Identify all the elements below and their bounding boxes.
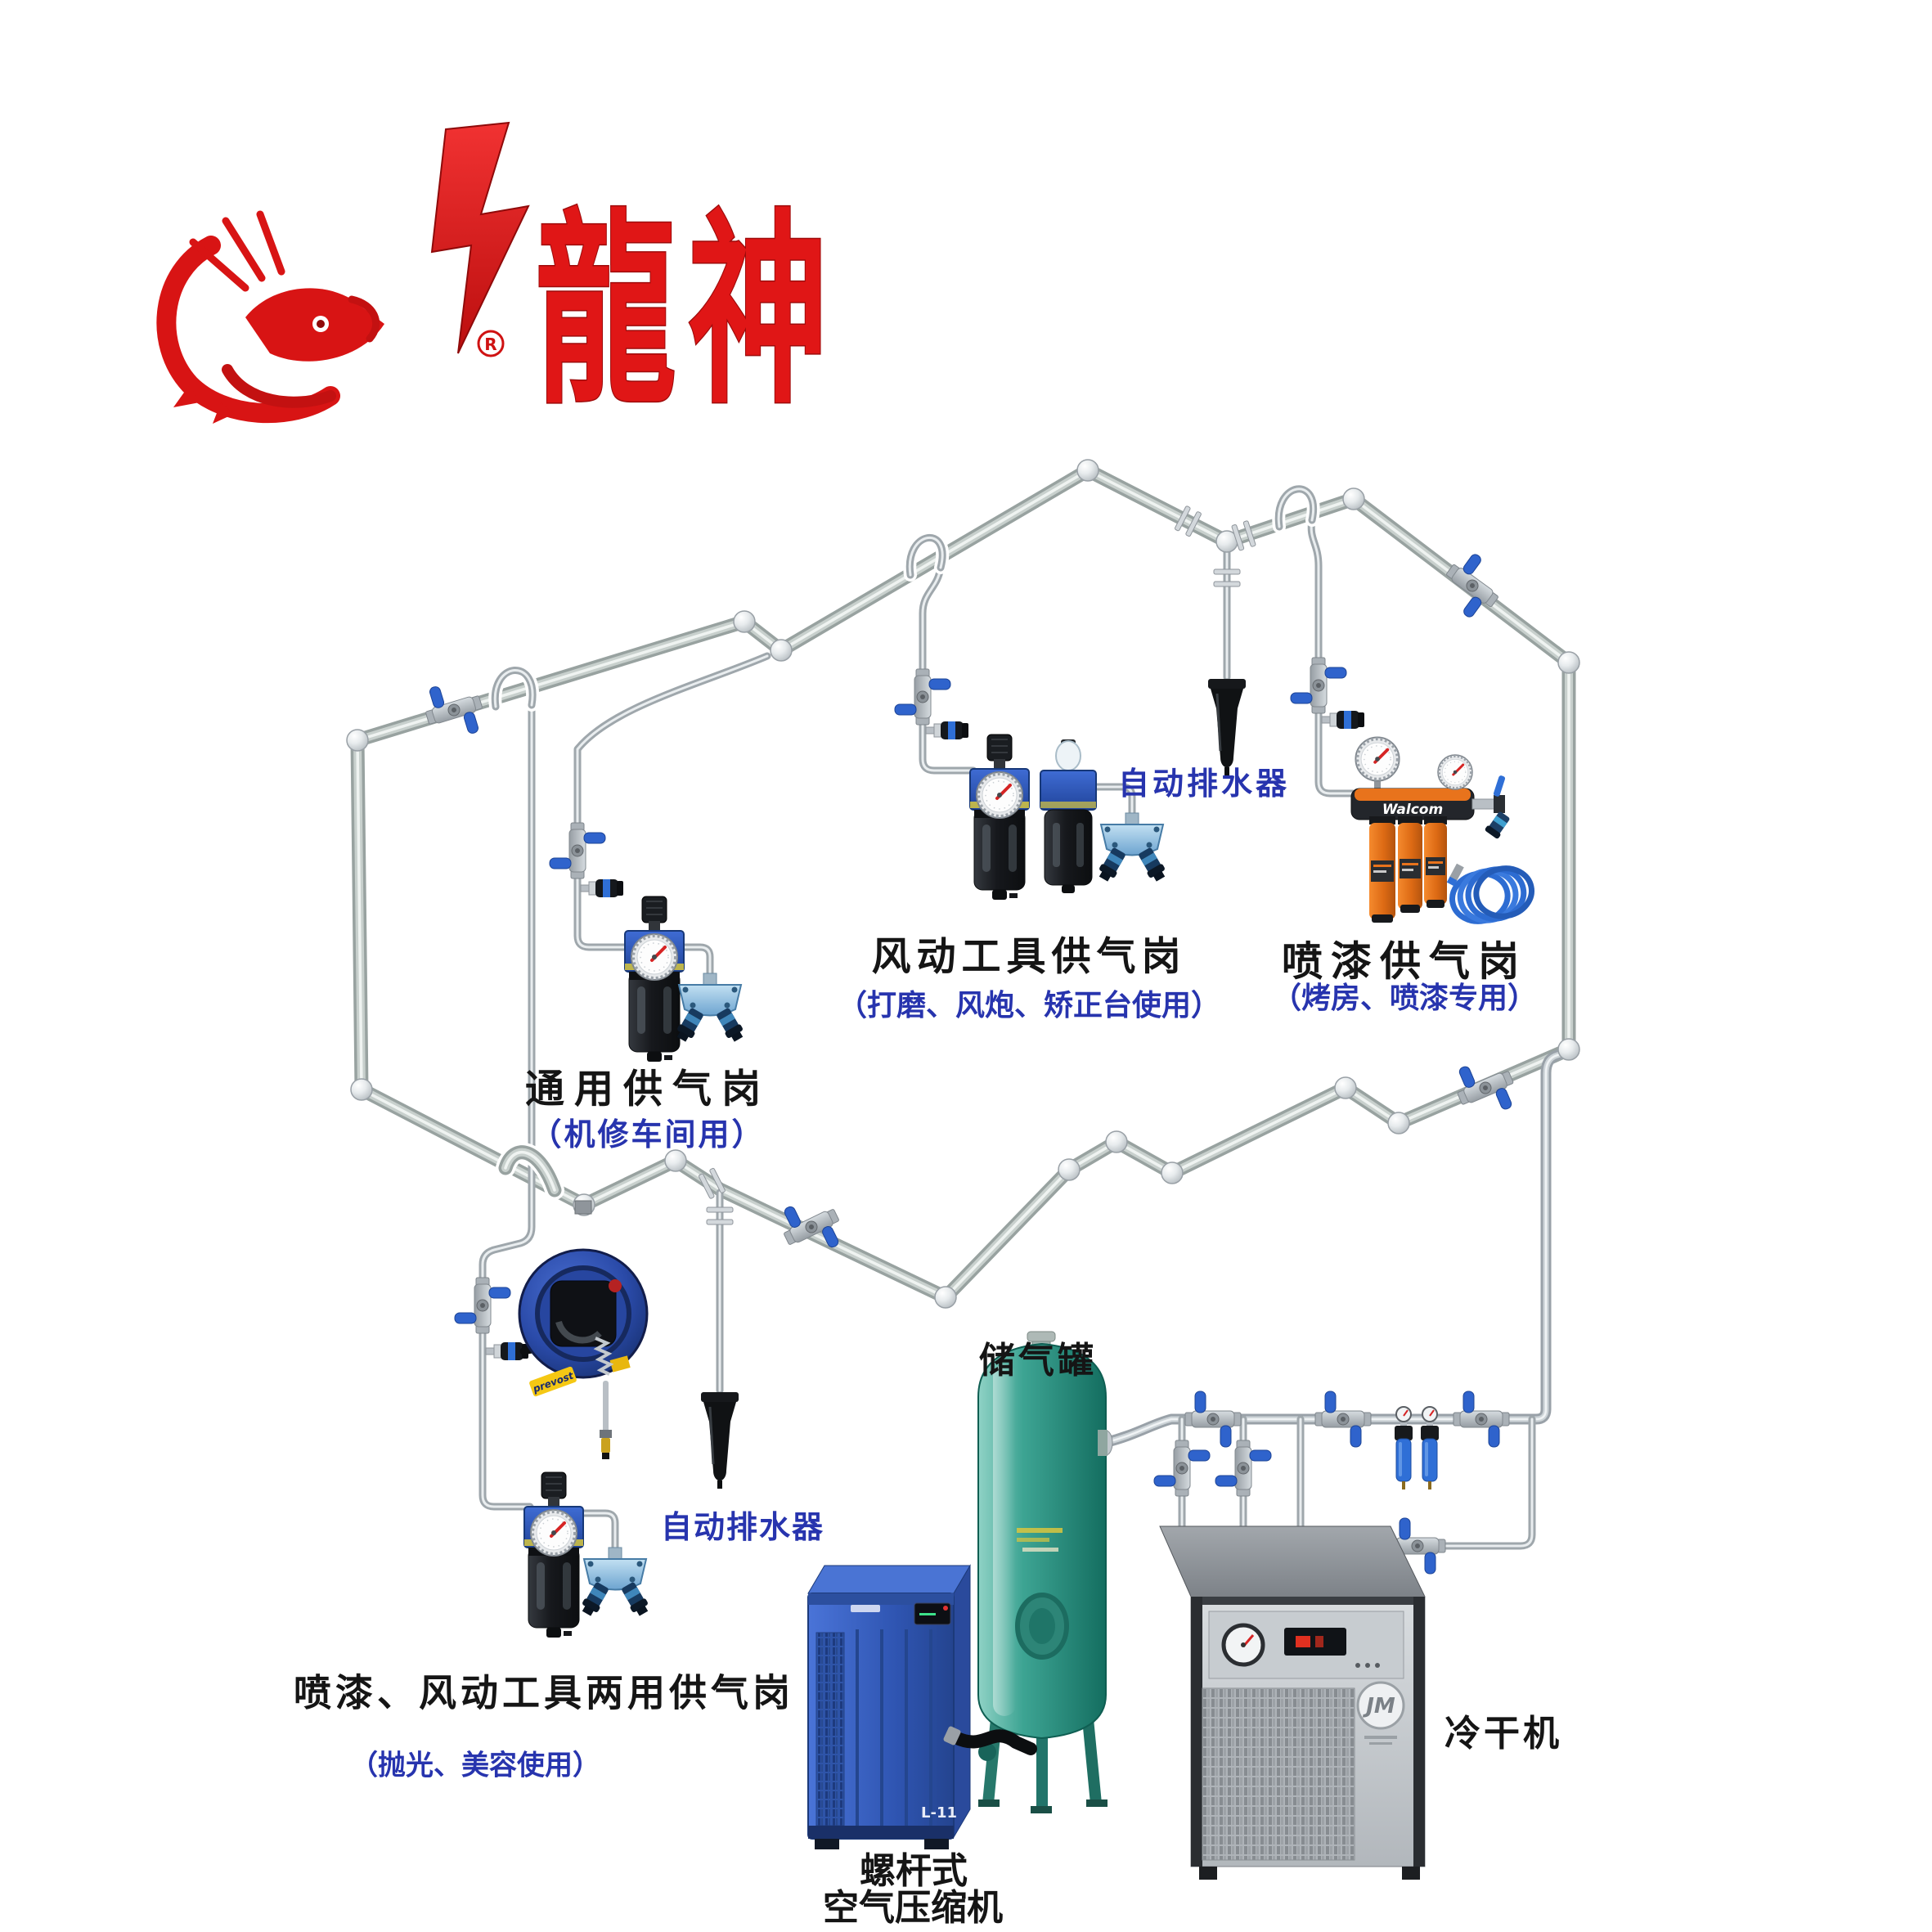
gauge-spray-left xyxy=(1355,737,1399,780)
valve-header-1 xyxy=(1315,1391,1371,1447)
label-station-general-subtitle: （机修车间用） xyxy=(530,1118,765,1152)
valve-dryer-in xyxy=(1154,1440,1210,1496)
label-station-dual-subtitle: （抛光、美容使用） xyxy=(350,1750,600,1781)
ball-valves xyxy=(420,547,1522,1574)
label-station-spray-subtitle: （烤房、喷漆专用） xyxy=(1272,982,1537,1015)
dryer-logo-text: JM xyxy=(1362,1694,1395,1719)
label-compressor-line1: 螺杆式 xyxy=(860,1852,968,1891)
duplex-coupler-general xyxy=(673,973,746,1044)
label-station-pneumatic-subtitle: （打磨、风炮、矫正台使用） xyxy=(838,990,1220,1022)
station-spray-equipment: Walcom xyxy=(1351,737,1536,928)
walcom-brand-text: Walcom xyxy=(1382,802,1443,818)
registered-mark-text: R xyxy=(484,335,496,354)
inline-filter-1 xyxy=(1395,1407,1413,1489)
registered-mark: R xyxy=(479,331,503,356)
diagram-canvas: Walcom xyxy=(0,0,1932,1932)
duplex-coupler-dual xyxy=(578,1548,651,1618)
air-dryer: JM xyxy=(1160,1526,1425,1880)
drop-pipe-spray xyxy=(1311,520,1353,793)
brand-logo: R 龍神 xyxy=(166,123,840,432)
auto-drain-right-device xyxy=(1208,679,1246,775)
valve-dryer-out xyxy=(1215,1440,1271,1496)
compressor-model-text: L-11 xyxy=(921,1804,957,1822)
spray-outlet-assembly xyxy=(1472,775,1512,839)
orange-cartridges xyxy=(1369,816,1447,923)
label-dryer: 冷干机 xyxy=(1445,1714,1562,1754)
hose-reel: prevost xyxy=(519,1201,647,1459)
label-station-dual-title: 喷漆、风动工具两用供气岗 xyxy=(294,1673,794,1714)
filter-regulator-pneumatic xyxy=(970,735,1029,900)
valve-dryer-bypass xyxy=(1185,1391,1241,1447)
drop-pipe-general xyxy=(577,656,767,947)
label-auto-drain-left: 自动排水器 xyxy=(661,1511,824,1545)
station-pneumatic-equipment xyxy=(970,735,1169,900)
valve-drop-pneumatic xyxy=(895,669,950,725)
dragon-icon xyxy=(166,123,528,424)
filter-regulator-dual xyxy=(524,1472,583,1638)
valve-header-2 xyxy=(1453,1391,1509,1447)
label-station-general-title: 通用供气岗 xyxy=(525,1068,771,1112)
station-dual-equipment: prevost xyxy=(519,1201,652,1638)
gauge-spray-right xyxy=(1438,755,1472,789)
inline-filter-2 xyxy=(1421,1407,1439,1489)
label-station-pneumatic-title: 风动工具供气岗 xyxy=(871,936,1186,979)
duplex-coupler-pneumatic xyxy=(1095,813,1168,883)
label-auto-drain-right: 自动排水器 xyxy=(1118,767,1290,802)
label-air-tank: 储气罐 xyxy=(979,1341,1097,1381)
valve-ring-bottomright xyxy=(1449,1051,1521,1124)
auto-drain-left-device xyxy=(701,1392,739,1489)
filter-regulator-general xyxy=(625,896,684,1062)
air-hose-coil xyxy=(1444,849,1537,927)
label-station-spray-title: 喷漆供气岗 xyxy=(1282,940,1527,985)
valve-drop-dual xyxy=(455,1278,510,1333)
brand-characters: 龍神 xyxy=(536,191,841,432)
lubricator-pneumatic xyxy=(1040,739,1096,893)
label-compressor-line2: 空气压缩机 xyxy=(823,1889,1003,1928)
valve-drop-spray xyxy=(1291,658,1346,713)
valve-drop-general xyxy=(550,823,605,878)
bottom-header-pipe xyxy=(1099,1052,1567,1546)
drop-pipe-pneumatic xyxy=(923,568,973,771)
station-general-equipment xyxy=(625,896,747,1062)
